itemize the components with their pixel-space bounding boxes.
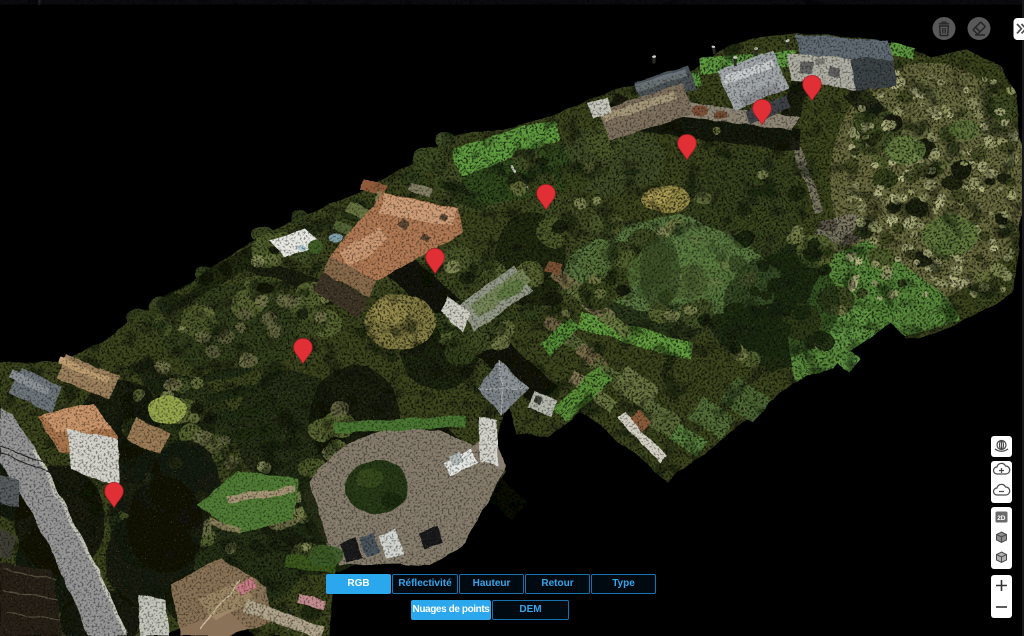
svg-text:2D: 2D (997, 515, 1006, 522)
